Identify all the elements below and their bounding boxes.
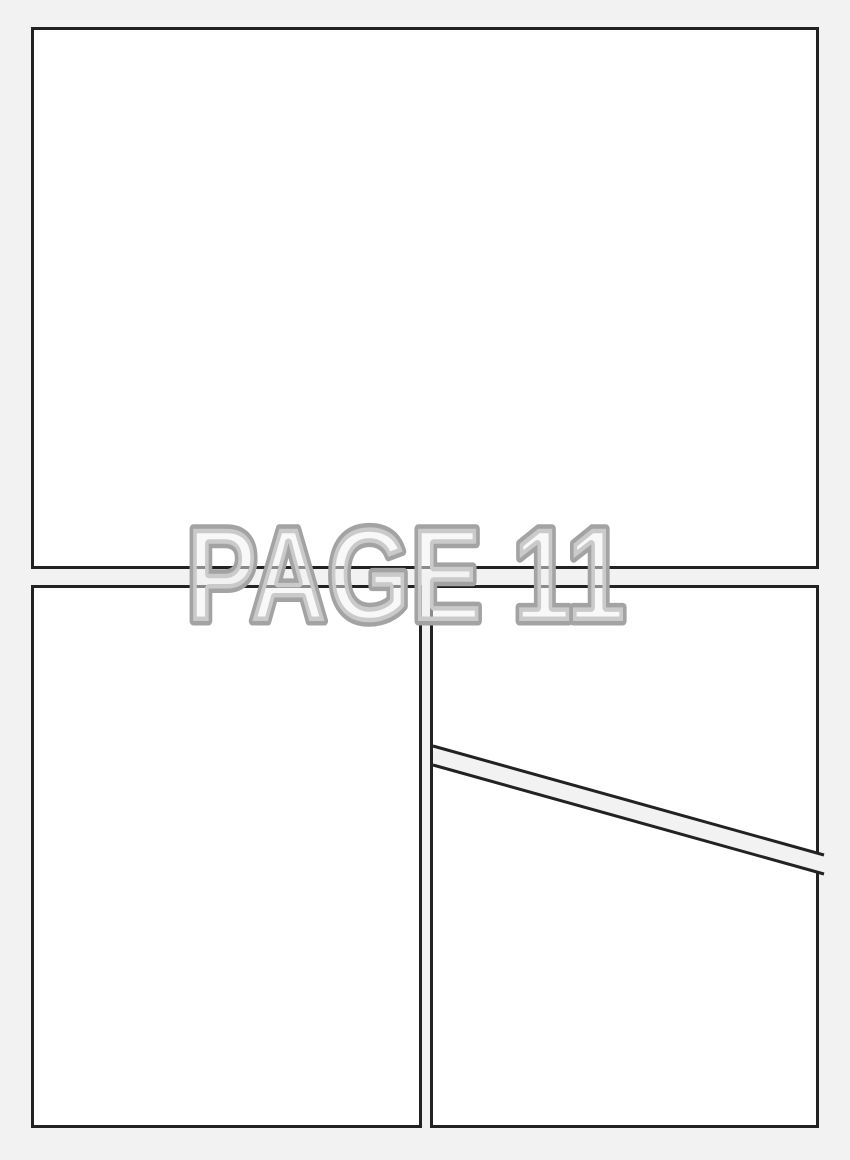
panel-bottom-right xyxy=(432,587,818,1127)
panel-bottom-left xyxy=(31,585,422,1128)
comic-page-template: PAGE 11 xyxy=(0,0,850,1160)
panel-top xyxy=(31,27,819,569)
diagonal-gutter xyxy=(433,746,824,874)
diagonal-border-upper xyxy=(433,746,824,855)
diagonal-border-lower xyxy=(433,765,824,874)
